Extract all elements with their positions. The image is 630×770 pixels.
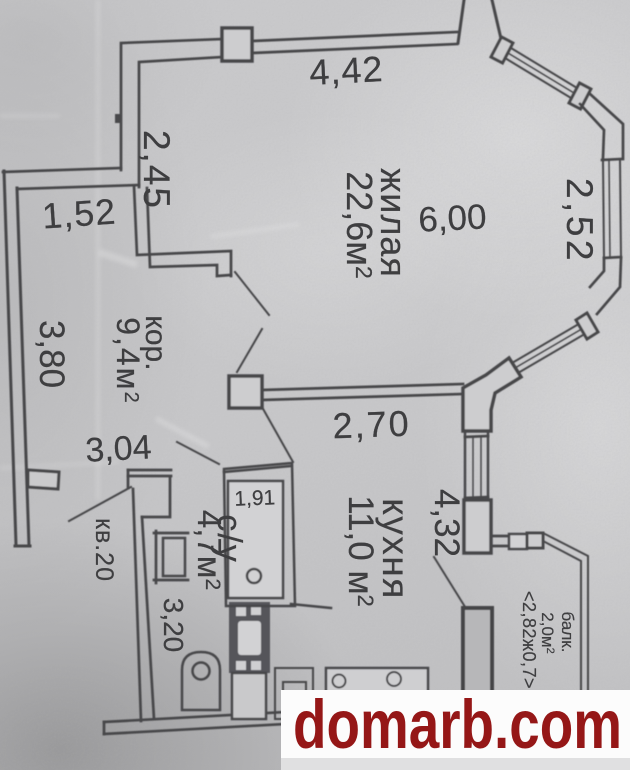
svg-text:domarb.com: domarb.com [293, 686, 622, 763]
svg-text:4,32: 4,32 [427, 489, 466, 557]
svg-text:2,70: 2,70 [332, 403, 411, 447]
svg-text:3,04: 3,04 [84, 428, 152, 469]
svg-text:кухня: кухня [375, 498, 416, 600]
svg-text:22,6м2: 22,6м2 [339, 171, 380, 279]
svg-text:9,4м2: 9,4м2 [110, 317, 146, 405]
svg-text:кв.20: кв.20 [90, 518, 118, 582]
svg-text:6,00: 6,00 [417, 197, 487, 240]
svg-text:3,80: 3,80 [32, 320, 71, 388]
svg-text:балк.: балк. [558, 612, 577, 653]
svg-text:2,45: 2,45 [136, 130, 177, 210]
svg-text:4,7м2: 4,7м2 [191, 510, 228, 590]
svg-text:<2,82ж0,7>: <2,82ж0,7> [519, 591, 539, 689]
svg-text:4,42: 4,42 [308, 48, 384, 93]
svg-text:2,52: 2,52 [559, 178, 600, 264]
svg-text:11,0 м2: 11,0 м2 [341, 495, 380, 607]
svg-text:3,20: 3,20 [158, 598, 189, 653]
svg-text:2,0м2: 2,0м2 [538, 612, 557, 653]
svg-text:1,91: 1,91 [234, 486, 276, 510]
svg-text:1,52: 1,52 [41, 190, 118, 236]
